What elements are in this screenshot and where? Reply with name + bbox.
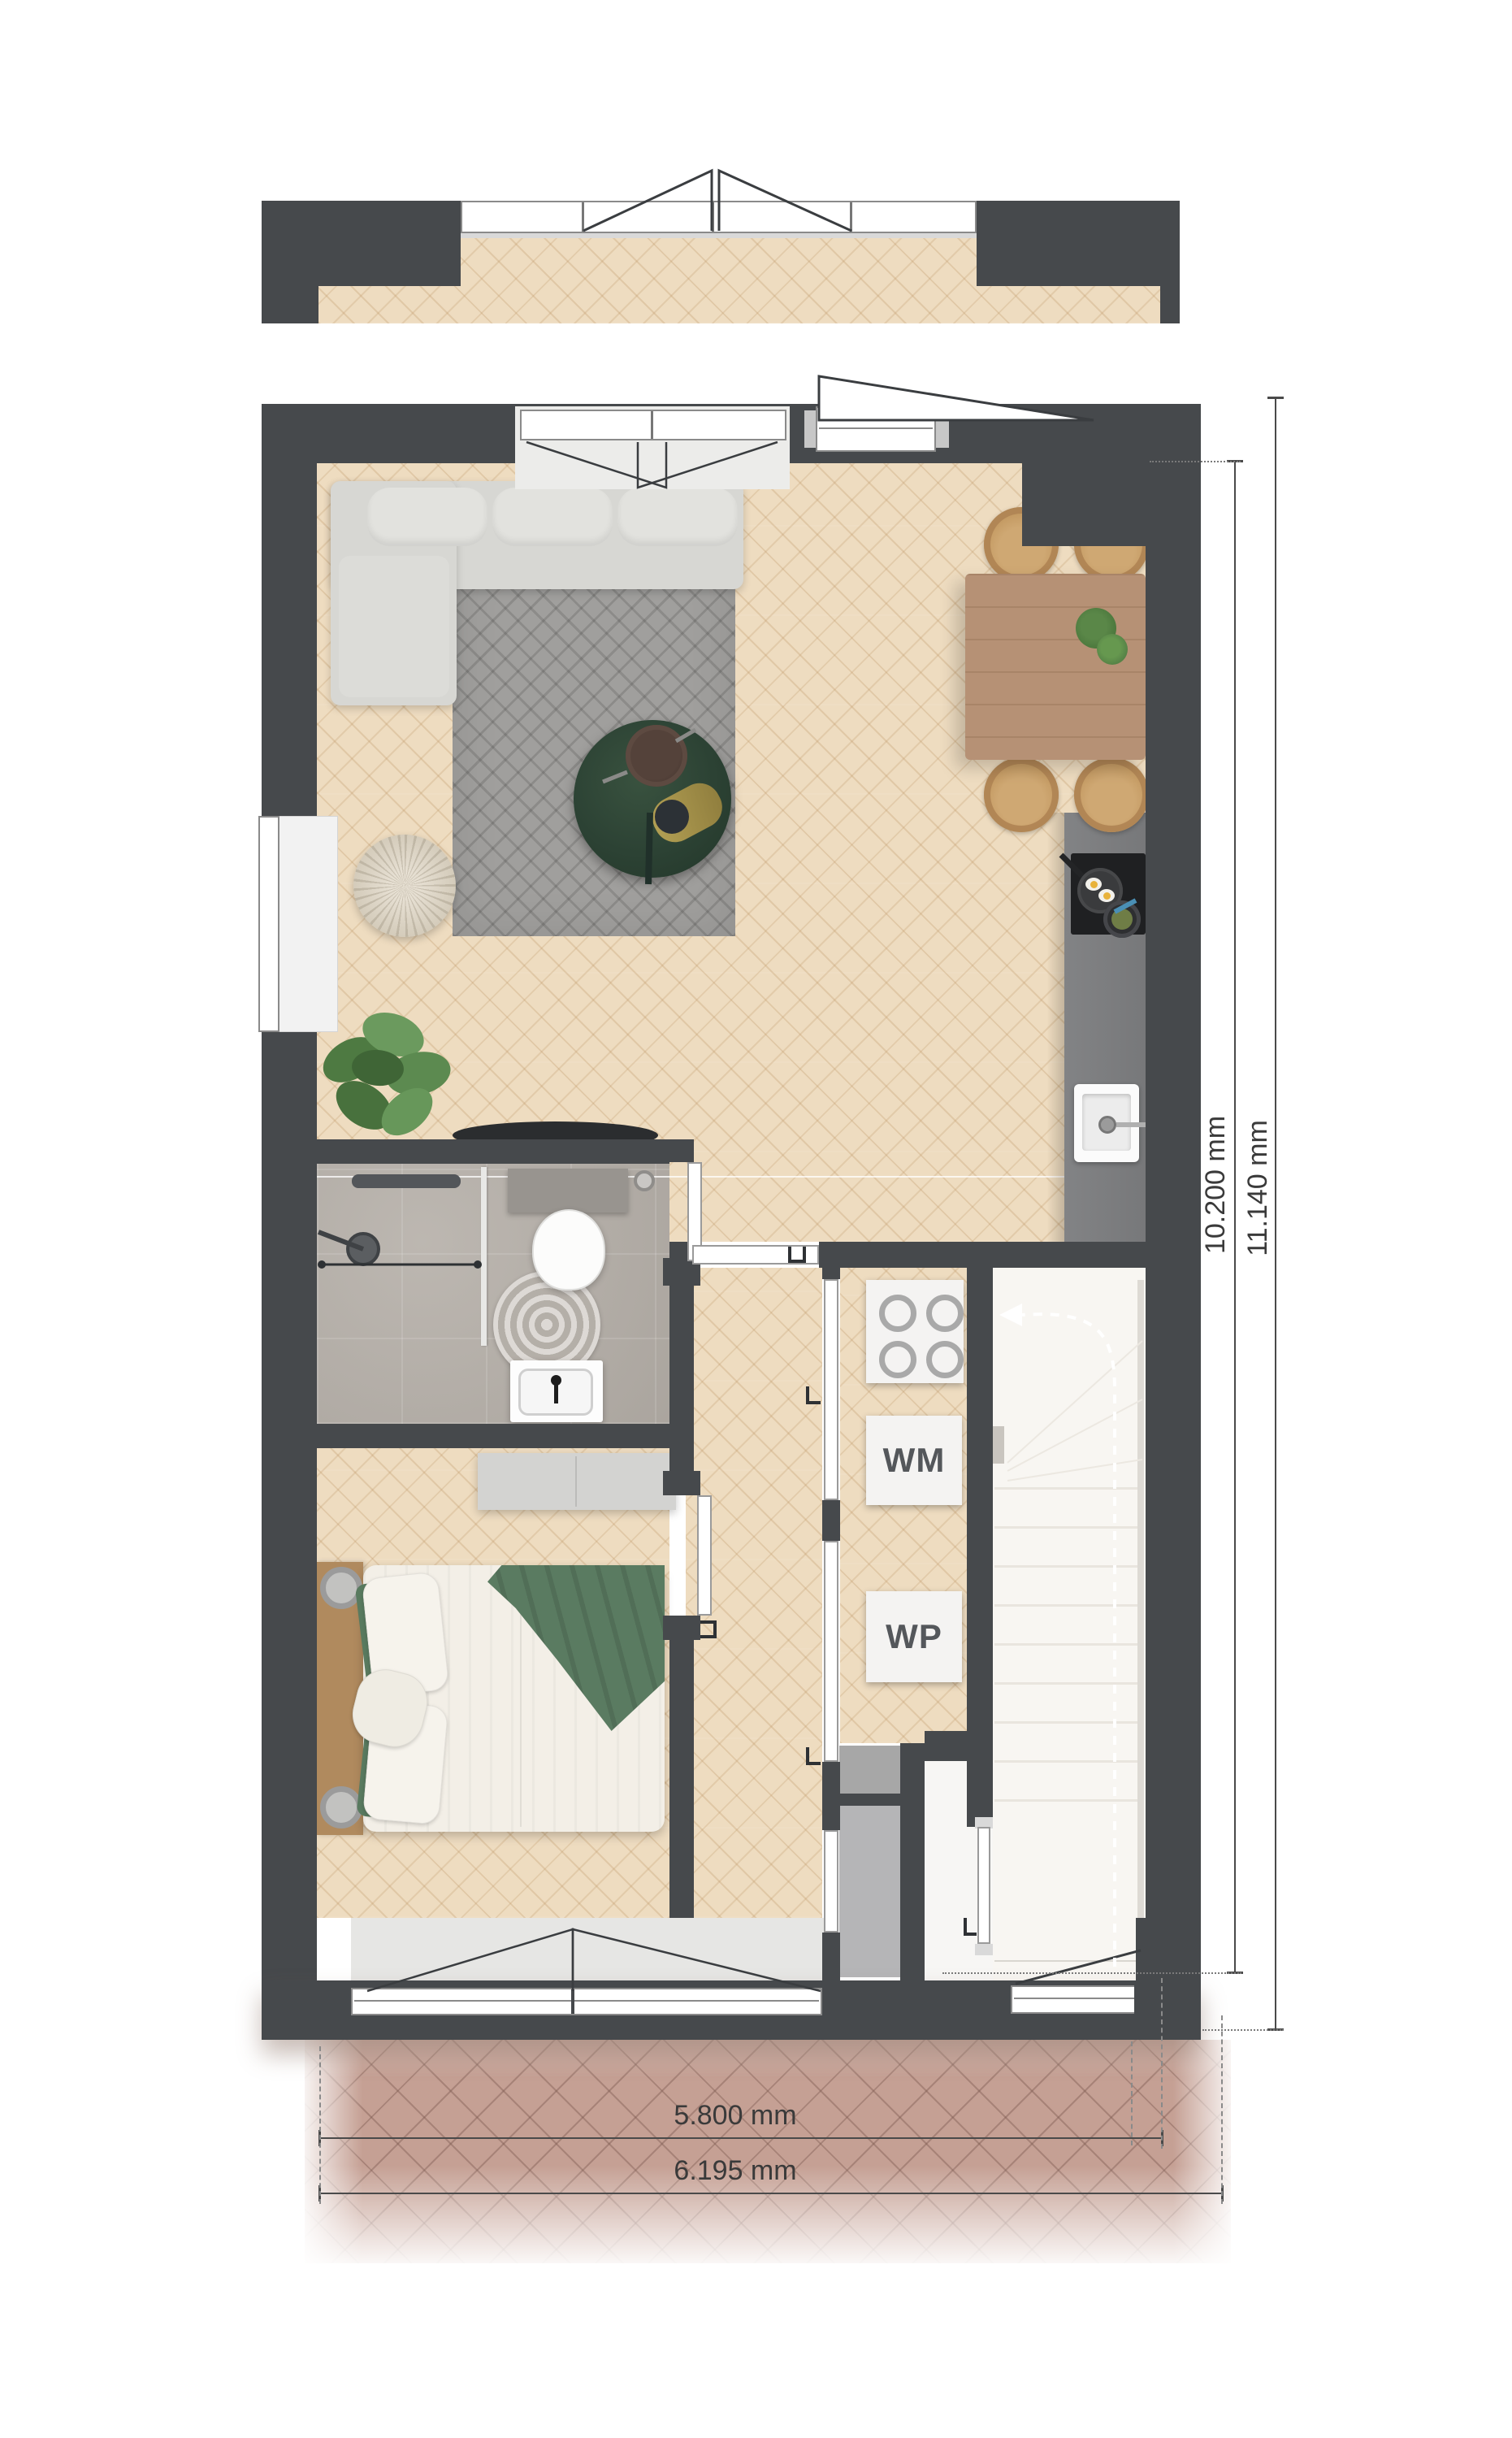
pouf-texture xyxy=(353,835,456,937)
stair-edge-strip xyxy=(1137,1280,1144,1979)
closet-divider-wall xyxy=(839,1794,900,1806)
sofa-back-cushion xyxy=(367,488,487,546)
top-strip-window xyxy=(461,201,977,233)
fried-egg-yolk xyxy=(1090,881,1098,888)
exterior-wall-left xyxy=(262,404,317,2040)
top-strip-wall-right xyxy=(977,201,1180,286)
front-door xyxy=(1011,1985,1144,2014)
dim-extension-line xyxy=(319,2046,321,2204)
living-window-mullion xyxy=(651,411,653,439)
closet-wall-piece xyxy=(822,1500,840,1541)
bedroom-wall-right-lower xyxy=(669,1616,694,1918)
top-strip-wall-right-lower xyxy=(1160,284,1180,323)
dim-label-vertical-inner: 10.200 mm xyxy=(1199,1095,1232,1274)
dining-table xyxy=(965,574,1146,760)
top-strip-window-mullion xyxy=(712,202,714,232)
table-plant xyxy=(1097,634,1128,665)
coffee-mug xyxy=(626,725,687,787)
shower-drain xyxy=(352,1174,461,1188)
front-door-hinge xyxy=(1134,1985,1146,2014)
dim-extension-line xyxy=(1150,461,1241,462)
window-jamb xyxy=(936,410,949,448)
dim-line-vertical-inner xyxy=(1234,462,1236,1973)
vent-ring-icon xyxy=(879,1341,916,1378)
exterior-wall-right xyxy=(1146,404,1201,2040)
understairs-wall-top xyxy=(925,1731,993,1761)
bedroom-window-rail xyxy=(354,2000,819,2002)
dim-label-vertical-outer: 11.140 mm xyxy=(1241,1099,1274,1278)
top-strip-window-sill xyxy=(461,233,977,238)
stair-newel-block xyxy=(993,1426,1004,1464)
top-strip-wall-left-lower xyxy=(262,284,318,323)
bedroom-window xyxy=(351,1988,822,2015)
hall-door-leaf xyxy=(692,1245,819,1265)
top-strip-window-mullion xyxy=(850,202,852,232)
sink-faucet xyxy=(1098,1116,1116,1134)
nightstand-tray xyxy=(320,1567,362,1609)
washing-machine: WM xyxy=(866,1416,962,1505)
dim-extension-line xyxy=(1131,2041,1133,2145)
bathroom-wall-bottom xyxy=(317,1424,669,1448)
heat-pump-label: WP xyxy=(886,1617,942,1656)
dim-line-vertical-outer xyxy=(1275,398,1276,2030)
bedroom-door-leaf xyxy=(697,1495,712,1616)
dim-tick xyxy=(1267,397,1284,399)
floor-plant xyxy=(313,1008,451,1146)
closet-wall-piece xyxy=(822,1762,840,1830)
tech-closet-door xyxy=(824,1279,838,1500)
heat-pump: WP xyxy=(866,1591,962,1682)
closet-wall-piece xyxy=(822,1268,840,1279)
dining-window-rail xyxy=(819,427,933,429)
dim-line-horizontal-outer xyxy=(320,2193,1222,2194)
corner-block-top-right xyxy=(1022,404,1201,546)
dim-extension-line xyxy=(1221,2015,1223,2204)
vent-ring-icon xyxy=(926,1295,964,1332)
dining-chair xyxy=(984,757,1059,832)
sink-faucet-stem xyxy=(1116,1122,1149,1127)
dining-window xyxy=(816,406,936,452)
dim-extension-line xyxy=(1202,2029,1284,2031)
living-window xyxy=(520,410,786,440)
floor-plan-page: WM WP xyxy=(0,0,1512,2438)
corner-block-bottom-right xyxy=(1136,1918,1201,2040)
closet-wall-piece xyxy=(822,1933,840,1983)
dining-chair xyxy=(1074,757,1149,832)
hall-wall xyxy=(819,1242,1146,1268)
bedroom-window-mullion xyxy=(571,1989,574,2014)
dim-extension-line xyxy=(942,1972,1241,1974)
tech-closet-door xyxy=(824,1541,838,1762)
understairs-door-block xyxy=(975,1944,993,1955)
bedroom-doorframe-block xyxy=(663,1471,700,1495)
shower-head xyxy=(346,1232,380,1266)
vent-ring-icon xyxy=(926,1341,964,1378)
top-strip-window-mullion xyxy=(582,202,584,232)
nightstand-tray xyxy=(320,1786,362,1828)
bedroom-doorframe-block2 xyxy=(663,1616,700,1640)
meter-closet-wall xyxy=(900,1743,925,1980)
dresser xyxy=(478,1453,676,1510)
top-strip-wall-left xyxy=(262,201,461,286)
dim-label-horizontal-inner: 5.800 mm xyxy=(630,2100,841,2132)
storage-closet-floor xyxy=(839,1806,900,1977)
window-jamb xyxy=(804,410,816,448)
pot-contents xyxy=(1111,909,1133,930)
toilet-bowl xyxy=(532,1209,605,1291)
paving-fade-overlay xyxy=(297,2036,1239,2271)
sofa-back-cushion xyxy=(492,488,613,546)
understairs-door-leaf xyxy=(977,1827,990,1944)
washing-machine-label: WM xyxy=(883,1441,946,1480)
bathroom-wall-right-lower xyxy=(669,1261,694,1448)
toilet-roll-holder xyxy=(634,1170,655,1191)
dim-line-horizontal-inner xyxy=(320,2137,1162,2139)
front-door-rail xyxy=(1014,1998,1141,1999)
kitchen-counter-shadow xyxy=(1046,813,1064,1266)
shower-glass-panel xyxy=(481,1167,487,1346)
sofa-chaise-cushion xyxy=(339,556,449,697)
sofa-back-cushion xyxy=(617,488,738,546)
stair-treads xyxy=(994,1487,1144,1837)
dresser-divider xyxy=(575,1456,577,1507)
vent-ring-icon xyxy=(879,1295,916,1332)
bathroom-wall-right-upper xyxy=(669,1139,694,1162)
left-window xyxy=(258,816,279,1032)
meter-closet-floor xyxy=(839,1746,900,1794)
meter-closet-door xyxy=(824,1830,838,1933)
fried-egg-yolk xyxy=(1103,892,1111,900)
dim-extension-line xyxy=(1161,1978,1163,2149)
basin-faucet-stem xyxy=(554,1384,558,1403)
canister-lid xyxy=(655,800,689,834)
entry-threshold-line xyxy=(994,1960,1144,1962)
toilet-cistern xyxy=(508,1169,628,1212)
bedroom-window-recess xyxy=(351,1918,837,1980)
dim-label-horizontal-outer: 6.195 mm xyxy=(630,2155,841,2187)
